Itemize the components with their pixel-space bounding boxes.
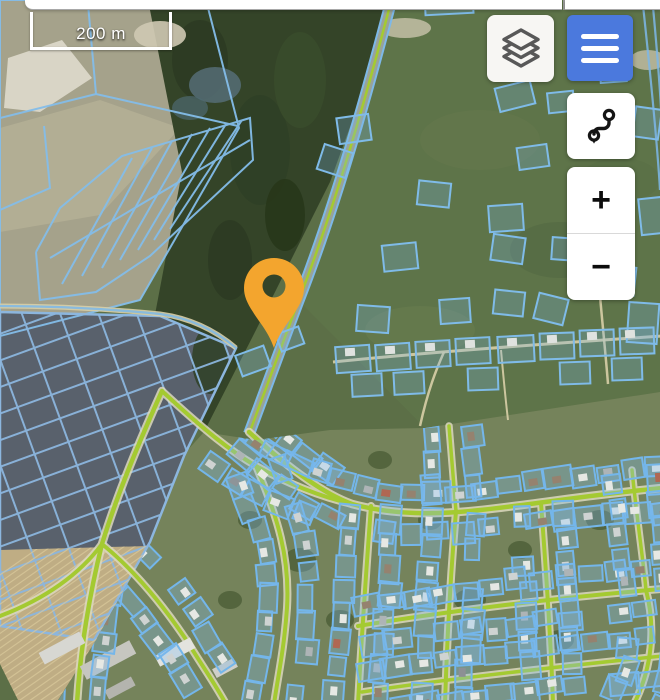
- map-canvas[interactable]: [0, 0, 660, 700]
- route-icon: [580, 105, 622, 147]
- menu-button[interactable]: [567, 15, 633, 81]
- map-app-window: 200 m: [0, 0, 660, 700]
- layers-icon: [499, 26, 543, 72]
- layers-button[interactable]: [487, 15, 554, 82]
- search-bar[interactable]: [25, 0, 562, 10]
- search-button-area[interactable]: [565, 0, 660, 10]
- route-button[interactable]: [567, 93, 635, 159]
- hamburger-menu-icon: [581, 34, 619, 63]
- scale-bar-label: 200 m: [33, 24, 169, 44]
- zoom-control: + −: [567, 167, 635, 300]
- zoom-out-button[interactable]: −: [567, 234, 635, 300]
- scale-bar: 200 m: [30, 12, 172, 50]
- zoom-in-button[interactable]: +: [567, 167, 635, 233]
